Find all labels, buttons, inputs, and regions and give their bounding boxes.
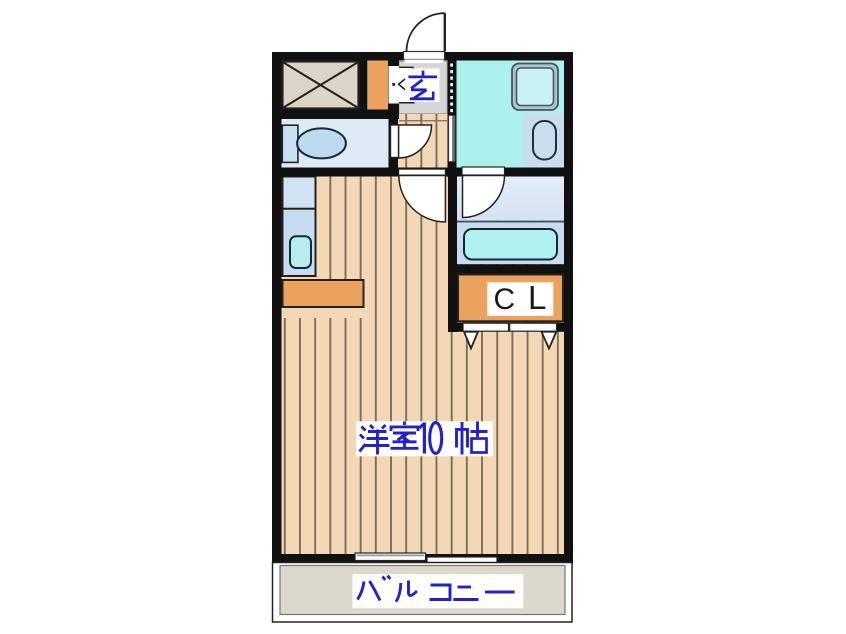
svg-text:L: L [528,279,546,316]
svg-text:C: C [494,283,516,316]
